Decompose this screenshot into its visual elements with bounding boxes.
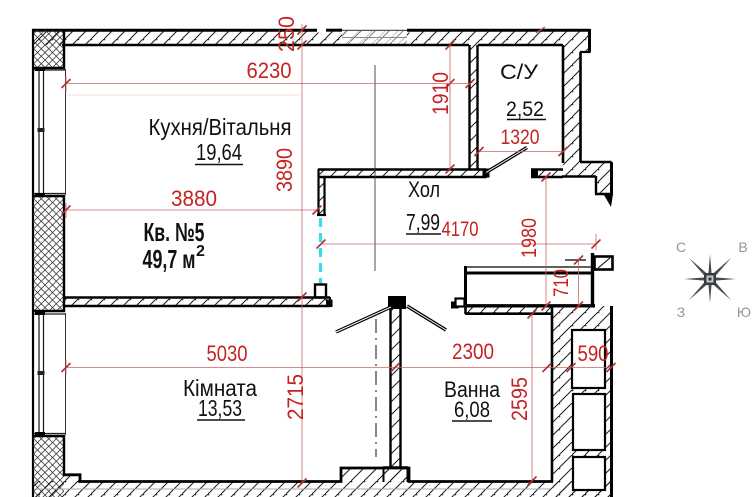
- svg-text:6,08: 6,08: [454, 397, 490, 422]
- svg-text:6230: 6230: [247, 58, 292, 83]
- svg-text:2,52: 2,52: [506, 98, 544, 121]
- svg-text:590: 590: [578, 341, 609, 366]
- svg-text:7,99: 7,99: [406, 209, 440, 235]
- svg-text:710: 710: [550, 269, 573, 297]
- svg-text:2: 2: [196, 243, 205, 260]
- svg-text:З: З: [677, 304, 685, 320]
- svg-text:1320: 1320: [501, 126, 540, 149]
- svg-text:13,53: 13,53: [198, 395, 242, 421]
- svg-text:Хол: Хол: [408, 177, 440, 202]
- svg-text:2595: 2595: [507, 377, 532, 421]
- svg-text:250: 250: [274, 16, 299, 52]
- svg-text:Кухня/Вітальня: Кухня/Вітальня: [149, 114, 292, 140]
- svg-text:2715: 2715: [283, 374, 308, 420]
- svg-text:С: С: [676, 239, 686, 255]
- svg-text:1980: 1980: [518, 218, 541, 258]
- svg-text:С/У: С/У: [500, 61, 539, 84]
- svg-text:3880: 3880: [171, 186, 217, 211]
- svg-text:19,64: 19,64: [196, 139, 242, 165]
- svg-text:5030: 5030: [207, 341, 248, 366]
- svg-text:В: В: [738, 239, 747, 255]
- svg-text:2300: 2300: [452, 339, 494, 364]
- svg-text:1910: 1910: [428, 72, 453, 115]
- svg-text:Ю: Ю: [737, 304, 751, 320]
- svg-text:4170: 4170: [442, 218, 479, 241]
- svg-text:3890: 3890: [272, 148, 297, 192]
- svg-text:49,7 м: 49,7 м: [143, 244, 196, 274]
